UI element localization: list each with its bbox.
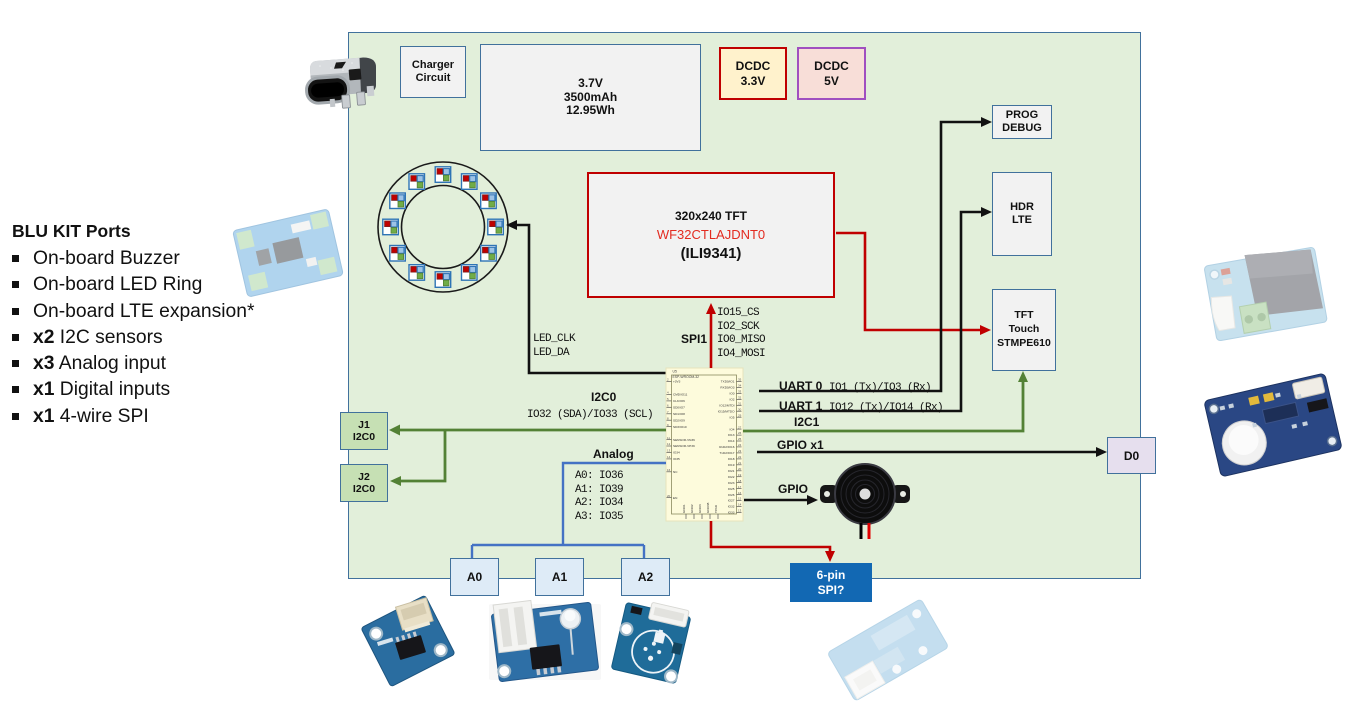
- svg-text:20: 20: [667, 494, 671, 498]
- svg-text:IO12/MTDI: IO12/MTDI: [719, 404, 734, 408]
- svg-text:27: 27: [738, 425, 742, 429]
- svg-text:SD1/IO8: SD1/IO8: [673, 412, 685, 416]
- svg-text:IO33: IO33: [728, 511, 735, 515]
- svg-text:IO4: IO4: [730, 427, 735, 431]
- svg-text:TxD2/IO17: TxD2/IO17: [720, 451, 735, 455]
- svg-text:IO27: IO27: [728, 499, 735, 503]
- svg-text:NC: NC: [673, 470, 678, 474]
- svg-text:14: 14: [667, 455, 671, 459]
- svg-text:15: 15: [738, 497, 742, 501]
- svg-text:16: 16: [667, 468, 671, 472]
- svg-text:GND1: GND1: [682, 504, 686, 513]
- svg-text:33: 33: [738, 390, 742, 394]
- svg-text:GND3: GND3: [698, 504, 702, 513]
- svg-text:U5: U5: [673, 370, 677, 374]
- svg-text:32: 32: [738, 396, 742, 400]
- svg-text:IO14: IO14: [728, 439, 735, 443]
- svg-text:25: 25: [738, 437, 742, 441]
- svg-text:12: 12: [667, 442, 671, 446]
- svg-text:13: 13: [667, 449, 671, 453]
- svg-text:ESP-WROOM-32: ESP-WROOM-32: [673, 375, 700, 379]
- svg-text:IO0: IO0: [730, 392, 735, 396]
- svg-text:IO15/MTDO: IO15/MTDO: [718, 409, 735, 413]
- svg-text:IO35: IO35: [673, 457, 680, 461]
- svg-text:22: 22: [738, 455, 742, 459]
- svg-text:SENSOR-VN36: SENSOR-VN36: [673, 438, 695, 442]
- svg-text:CMD/IO11: CMD/IO11: [673, 393, 688, 397]
- svg-text:IO25: IO25: [728, 487, 735, 491]
- svg-text:TXD0/IO1: TXD0/IO1: [721, 380, 735, 384]
- svg-text:CLK/IO6: CLK/IO6: [673, 399, 685, 403]
- svg-text:16: 16: [738, 491, 742, 495]
- svg-text:IO5: IO5: [730, 415, 735, 419]
- svg-text:IO32: IO32: [728, 505, 735, 509]
- svg-text:EN: EN: [673, 496, 677, 500]
- svg-text:35: 35: [738, 378, 742, 382]
- svg-text:SD3/IO10: SD3/IO10: [673, 425, 687, 429]
- svg-text:IO23: IO23: [728, 481, 735, 485]
- svg-text:29: 29: [738, 413, 742, 417]
- svg-text:SD0/IO7: SD0/IO7: [673, 406, 685, 410]
- svg-text:17: 17: [738, 485, 742, 489]
- svg-text:IO18: IO18: [728, 457, 735, 461]
- svg-text:21: 21: [738, 461, 742, 465]
- svg-text:IO2: IO2: [730, 398, 735, 402]
- svg-text:11: 11: [667, 436, 670, 440]
- svg-text:+3V3: +3V3: [673, 380, 681, 384]
- svg-text:IO22: IO22: [728, 475, 735, 479]
- svg-text:IO13: IO13: [728, 433, 735, 437]
- svg-text:19: 19: [738, 473, 742, 477]
- svg-text:IO34: IO34: [673, 451, 680, 455]
- svg-text:14: 14: [738, 503, 742, 507]
- svg-text:31: 31: [738, 402, 742, 406]
- svg-text:SD2/IO9: SD2/IO9: [673, 418, 685, 422]
- svg-text:23: 23: [738, 449, 742, 453]
- svg-text:GND2: GND2: [690, 504, 694, 513]
- svg-text:SENSOR-VP39: SENSOR-VP39: [673, 444, 695, 448]
- svg-text:20: 20: [738, 467, 742, 471]
- svg-text:GND38: GND38: [706, 502, 710, 513]
- svg-text:RxD2/IO16: RxD2/IO16: [719, 445, 735, 449]
- svg-text:34: 34: [738, 384, 742, 388]
- svg-text:30: 30: [738, 407, 742, 411]
- svg-text:IO21: IO21: [728, 469, 735, 473]
- svg-text:18: 18: [738, 479, 742, 483]
- svg-text:26: 26: [738, 431, 742, 435]
- svg-text:TPAD: TPAD: [714, 504, 718, 513]
- svg-text:IO26: IO26: [728, 493, 735, 497]
- svg-text:13: 13: [738, 509, 742, 513]
- svg-text:24: 24: [738, 443, 742, 447]
- svg-text:RXD0/IO3: RXD0/IO3: [720, 386, 734, 390]
- svg-text:IO19: IO19: [728, 463, 735, 467]
